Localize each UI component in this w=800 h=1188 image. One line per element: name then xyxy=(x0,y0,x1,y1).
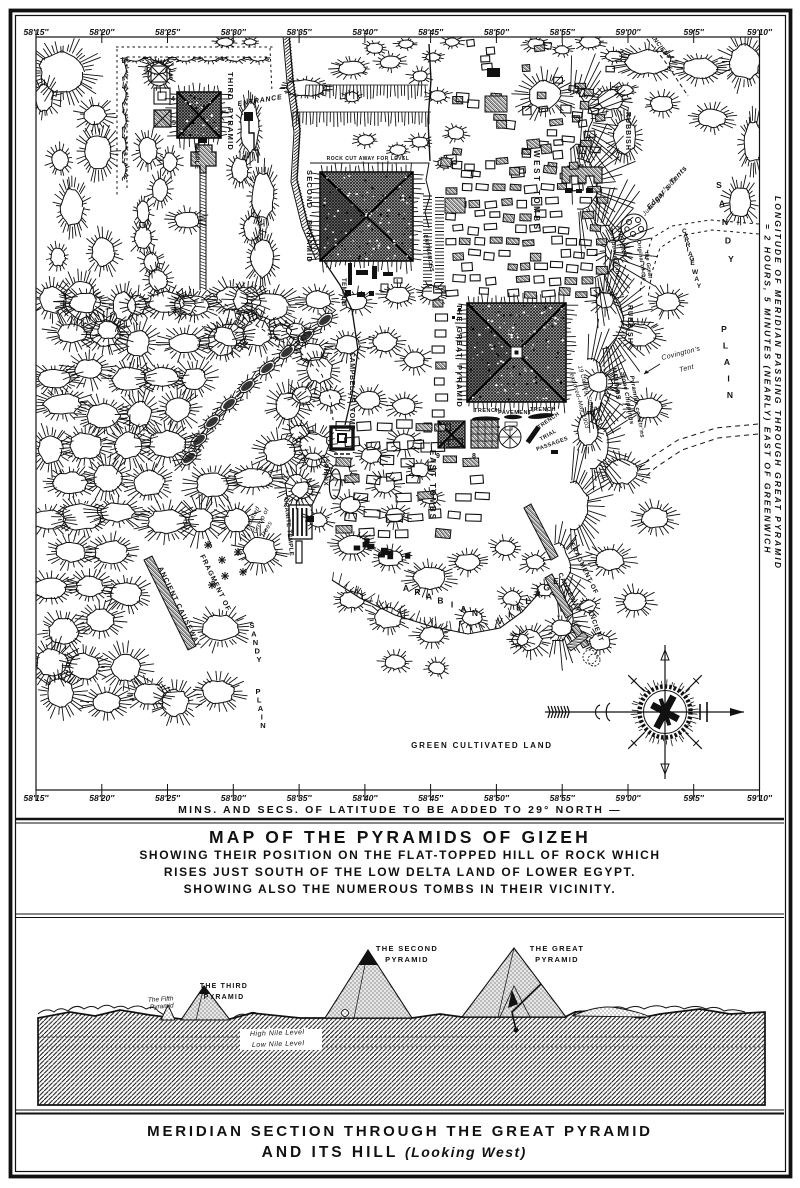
svg-text:Y: Y xyxy=(256,655,261,664)
svg-text:ROCK CUT AWAY FOR LEVEL: ROCK CUT AWAY FOR LEVEL xyxy=(327,156,410,162)
svg-text:L: L xyxy=(525,596,530,606)
svg-text:V: V xyxy=(497,616,503,626)
svg-text:A: A xyxy=(460,604,466,614)
svg-text:A: A xyxy=(426,591,432,601)
svg-text:L: L xyxy=(723,341,728,351)
svg-text:N: N xyxy=(722,217,728,227)
svg-text:B: B xyxy=(437,596,443,606)
svg-text:58′40″: 58′40″ xyxy=(352,27,378,37)
svg-text:58′50″: 58′50″ xyxy=(484,27,510,37)
svg-text:58′45″: 58′45″ xyxy=(418,27,444,37)
svg-text:D: D xyxy=(725,236,731,246)
svg-text:4: 4 xyxy=(171,96,177,103)
svg-text:THIRD: THIRD xyxy=(226,72,235,101)
svg-text:SHOWING ALSO THE NUMEROUS TOMB: SHOWING ALSO THE NUMEROUS TOMBS IN THEIR… xyxy=(184,882,617,896)
svg-text:58′45″: 58′45″ xyxy=(418,793,444,803)
svg-text:RUBBISH: RUBBISH xyxy=(626,305,633,344)
svg-text:P: P xyxy=(721,324,727,334)
svg-text:58′55″: 58′55″ xyxy=(550,27,576,37)
svg-text:TOMB: TOMB xyxy=(348,408,355,431)
svg-text:58′15″: 58′15″ xyxy=(23,793,49,803)
svg-text:S: S xyxy=(716,180,722,190)
svg-text:58′25″: 58′25″ xyxy=(155,793,181,803)
svg-text:WEST: WEST xyxy=(532,150,541,184)
svg-text:THE THIRD: THE THIRD xyxy=(200,983,248,990)
svg-text:TOMBS: TOMBS xyxy=(428,483,437,521)
svg-text:G: G xyxy=(543,583,550,593)
svg-text:59′00″: 59′00″ xyxy=(615,793,641,803)
svg-text:A: A xyxy=(719,199,725,209)
svg-text:PYRAMID: PYRAMID xyxy=(204,994,245,1001)
svg-text:58′25″: 58′25″ xyxy=(155,27,181,37)
svg-text:GREAT: GREAT xyxy=(455,327,464,359)
svg-text:5: 5 xyxy=(172,120,178,127)
svg-text:RUBBISH: RUBBISH xyxy=(624,112,631,151)
svg-text:58′30″: 58′30″ xyxy=(221,793,247,803)
svg-text:58′40″: 58′40″ xyxy=(352,793,378,803)
svg-text:59′10″: 59′10″ xyxy=(747,27,773,37)
svg-text:58′15″: 58′15″ xyxy=(23,27,49,37)
svg-text:EAST: EAST xyxy=(428,450,437,479)
svg-text:TOMBS: TOMBS xyxy=(532,190,541,232)
svg-text:I: I xyxy=(451,600,453,610)
svg-text:I: I xyxy=(508,609,510,619)
svg-text:= 2 HOURS, 5 MINUTES (NEARLY): = 2 HOURS, 5 MINUTES (NEARLY) EAST OF GR… xyxy=(763,224,773,555)
svg-text:THE SECOND: THE SECOND xyxy=(376,944,438,953)
svg-text:SECOND: SECOND xyxy=(305,170,314,209)
svg-text:59′10″: 59′10″ xyxy=(747,793,773,803)
svg-text:59′5″: 59′5″ xyxy=(684,27,705,37)
svg-text:SHOWING THEIR POSITION ON THE: SHOWING THEIR POSITION ON THE FLAT-TOPPE… xyxy=(139,848,660,862)
svg-text:PYRAMID: PYRAMID xyxy=(385,955,429,964)
svg-text:N: N xyxy=(260,721,265,730)
svg-text:TRENCH: TRENCH xyxy=(530,407,556,413)
svg-text:A: A xyxy=(694,276,699,283)
svg-text:MAP OF THE PYRAMIDS OF GIZEH: MAP OF THE PYRAMIDS OF GIZEH xyxy=(209,827,591,847)
svg-text:L: L xyxy=(516,603,521,613)
svg-text:58′50″: 58′50″ xyxy=(484,793,510,803)
svg-text:(Looking West): (Looking West) xyxy=(405,1144,527,1160)
svg-text:TEMPLE: TEMPLE xyxy=(193,142,199,169)
svg-text:58′20″: 58′20″ xyxy=(89,27,115,37)
svg-text:THE GREAT: THE GREAT xyxy=(530,944,584,953)
svg-text:CAMPBELL’S: CAMPBELL’S xyxy=(348,352,355,403)
svg-text:58′35″: 58′35″ xyxy=(287,27,313,37)
svg-text:MERIDIAN SECTION THROUGH THE G: MERIDIAN SECTION THROUGH THE GREAT PYRAM… xyxy=(147,1123,653,1140)
svg-text:58′30″: 58′30″ xyxy=(221,27,247,37)
svg-text:6: 6 xyxy=(169,75,175,82)
svg-text:A: A xyxy=(534,589,540,599)
svg-text:58′20″: 58′20″ xyxy=(89,793,115,803)
svg-text:GREEN CULTIVATED LAND: GREEN CULTIVATED LAND xyxy=(411,741,553,750)
svg-text:Y: Y xyxy=(697,283,702,290)
svg-text:TEMPLE: TEMPLE xyxy=(340,278,346,305)
svg-text:E: E xyxy=(553,576,559,586)
svg-text:E: E xyxy=(690,260,695,267)
svg-text:PYRAMID: PYRAMID xyxy=(455,365,464,408)
svg-text:W: W xyxy=(692,269,699,276)
svg-text:THE: THE xyxy=(455,304,464,323)
svg-text:58′35″: 58′35″ xyxy=(287,793,313,803)
svg-text:A: A xyxy=(403,583,409,593)
svg-text:A: A xyxy=(724,357,730,367)
svg-text:59′00″: 59′00″ xyxy=(615,27,641,37)
svg-text:RISES JUST SOUTH OF THE LOW DE: RISES JUST SOUTH OF THE LOW DELTA LAND O… xyxy=(164,865,636,879)
svg-text:59′5″: 59′5″ xyxy=(684,793,705,803)
svg-text:LONGITUDE OF MERIDIAN PASSING: LONGITUDE OF MERIDIAN PASSING THROUGH GR… xyxy=(773,196,783,570)
svg-text:N: N xyxy=(472,608,478,618)
svg-text:Y: Y xyxy=(728,254,734,264)
svg-text:I: I xyxy=(727,374,729,384)
svg-text:PYRAMID: PYRAMID xyxy=(305,220,314,263)
svg-text:PYRAMID: PYRAMID xyxy=(535,955,579,964)
svg-text:N: N xyxy=(727,390,733,400)
svg-text:MINS. AND SECS. OF LATITUDE TO: MINS. AND SECS. OF LATITUDE TO BE ADDED … xyxy=(178,804,622,816)
svg-text:TRENCH: TRENCH xyxy=(474,408,500,414)
svg-text:PYRAMID: PYRAMID xyxy=(226,108,235,151)
svg-text:R: R xyxy=(414,587,420,597)
svg-text:58′55″: 58′55″ xyxy=(550,793,576,803)
svg-text:AND ITS HILL: AND ITS HILL xyxy=(262,1144,399,1161)
